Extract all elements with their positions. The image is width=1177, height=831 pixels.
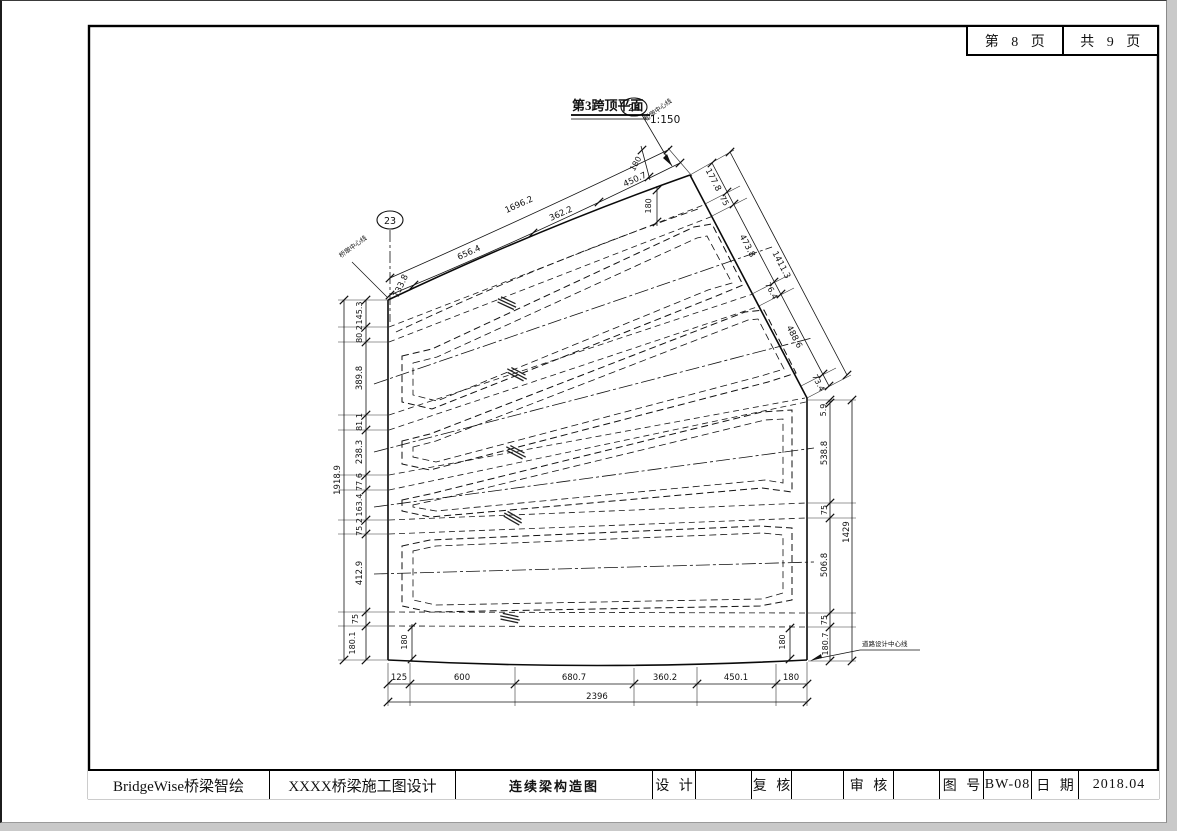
check-label: 复 核 bbox=[751, 771, 791, 799]
dim-label: 177.8 bbox=[703, 167, 723, 193]
girder-outlines bbox=[402, 224, 796, 612]
dim-top-total: 1696.2 bbox=[504, 194, 535, 215]
screen: { "page_header": { "page_label": "第 8 页"… bbox=[0, 0, 1177, 831]
dim-label: 238.3 bbox=[355, 440, 365, 464]
dim-label: 680.7 bbox=[562, 673, 586, 683]
pier-23-number: 23 bbox=[384, 216, 396, 227]
page-total: 共 9 页 bbox=[1062, 27, 1158, 54]
dim-label: 75 bbox=[820, 505, 829, 515]
dim-label: 145.3 bbox=[355, 302, 364, 325]
dim-label: 506.8 bbox=[820, 553, 830, 577]
date-value: 2018.04 bbox=[1078, 771, 1159, 799]
dim-label: 412.9 bbox=[355, 561, 365, 585]
dim-label: 180 bbox=[644, 198, 654, 214]
dim-label: 77.6 bbox=[355, 473, 364, 491]
dim-label: 600 bbox=[454, 673, 470, 683]
dimension-labels: 1696.2 133.8 656.4 362.2 450.7 180 180 1… bbox=[333, 155, 852, 702]
dim-label: 133.8 bbox=[392, 273, 411, 299]
page-number: 第 8 页 bbox=[968, 27, 1062, 54]
project-name: XXXX桥梁施工图设计 bbox=[269, 771, 455, 799]
date-label: 日 期 bbox=[1031, 771, 1078, 799]
illegible-annotation-marks bbox=[497, 296, 528, 623]
dim-label: 488.6 bbox=[784, 324, 804, 350]
dim-label: 125 bbox=[391, 673, 407, 683]
design-label: 设 计 bbox=[652, 771, 695, 799]
drawing-scale: 1:150 bbox=[650, 114, 680, 126]
dim-bottom-total: 2396 bbox=[586, 692, 608, 702]
dim-label: 360.2 bbox=[653, 673, 677, 683]
page-number-box: 第 8 页 共 9 页 bbox=[966, 25, 1159, 56]
dim-label: 538.8 bbox=[820, 441, 830, 465]
dim-label: 81.1 bbox=[355, 413, 364, 431]
review-value-cell bbox=[893, 771, 939, 799]
drawing-name: 连续梁构造图 bbox=[455, 771, 652, 799]
company-name: BridgeWise桥梁智绘 bbox=[88, 771, 269, 799]
girder-centerlines bbox=[374, 247, 814, 574]
leader-arrow bbox=[810, 654, 822, 661]
dim-label: 180 bbox=[400, 634, 409, 649]
dim-label: 450.1 bbox=[724, 673, 748, 683]
dim-label: 180 bbox=[628, 155, 643, 173]
dim-label: 5.9 bbox=[819, 404, 828, 417]
leader-arrow bbox=[663, 154, 672, 166]
dim-label: 75 bbox=[820, 615, 829, 625]
title-block: BridgeWise桥梁智绘 XXXX桥梁施工图设计 连续梁构造图 设 计 复 … bbox=[88, 769, 1159, 799]
dim-label: 80.2 bbox=[355, 325, 364, 343]
dim-label: 473.8 bbox=[737, 233, 757, 259]
dim-label: 389.8 bbox=[355, 366, 365, 390]
dim-label: 180.1 bbox=[348, 632, 357, 655]
dim-label: 75.2 bbox=[355, 518, 364, 536]
design-value-cell bbox=[695, 771, 751, 799]
drawing-no-value: BW-08 bbox=[983, 771, 1031, 799]
dim-label: 450.7 bbox=[622, 171, 648, 190]
dim-skew-total: 1411.3 bbox=[769, 250, 792, 281]
drawing-frame bbox=[89, 26, 1158, 798]
dim-right-total: 1429 bbox=[842, 521, 852, 543]
dim-label: 180 bbox=[778, 634, 787, 649]
dim-label: 163.4 bbox=[355, 494, 364, 517]
bridge-plan-drawing: 1696.2 133.8 656.4 362.2 450.7 180 180 1… bbox=[0, 0, 1177, 831]
drawing-title: 第3跨顶平面 bbox=[572, 98, 644, 113]
dim-label: 180.7 bbox=[821, 633, 830, 656]
dimension-lines bbox=[344, 146, 852, 702]
dim-label: 75 bbox=[351, 614, 360, 624]
check-value-cell bbox=[791, 771, 843, 799]
review-label: 审 核 bbox=[843, 771, 893, 799]
pier-23-line-label: 桥墩中心线 bbox=[337, 233, 369, 260]
dim-left-total: 1918.9 bbox=[333, 465, 343, 495]
dim-label: 180 bbox=[783, 673, 799, 683]
road-centerline-label: 道路设计中心线 bbox=[862, 639, 908, 648]
deck-inset-line bbox=[396, 209, 698, 332]
dim-label: 76.4 bbox=[763, 281, 779, 301]
drawing-no-label: 图 号 bbox=[939, 771, 983, 799]
